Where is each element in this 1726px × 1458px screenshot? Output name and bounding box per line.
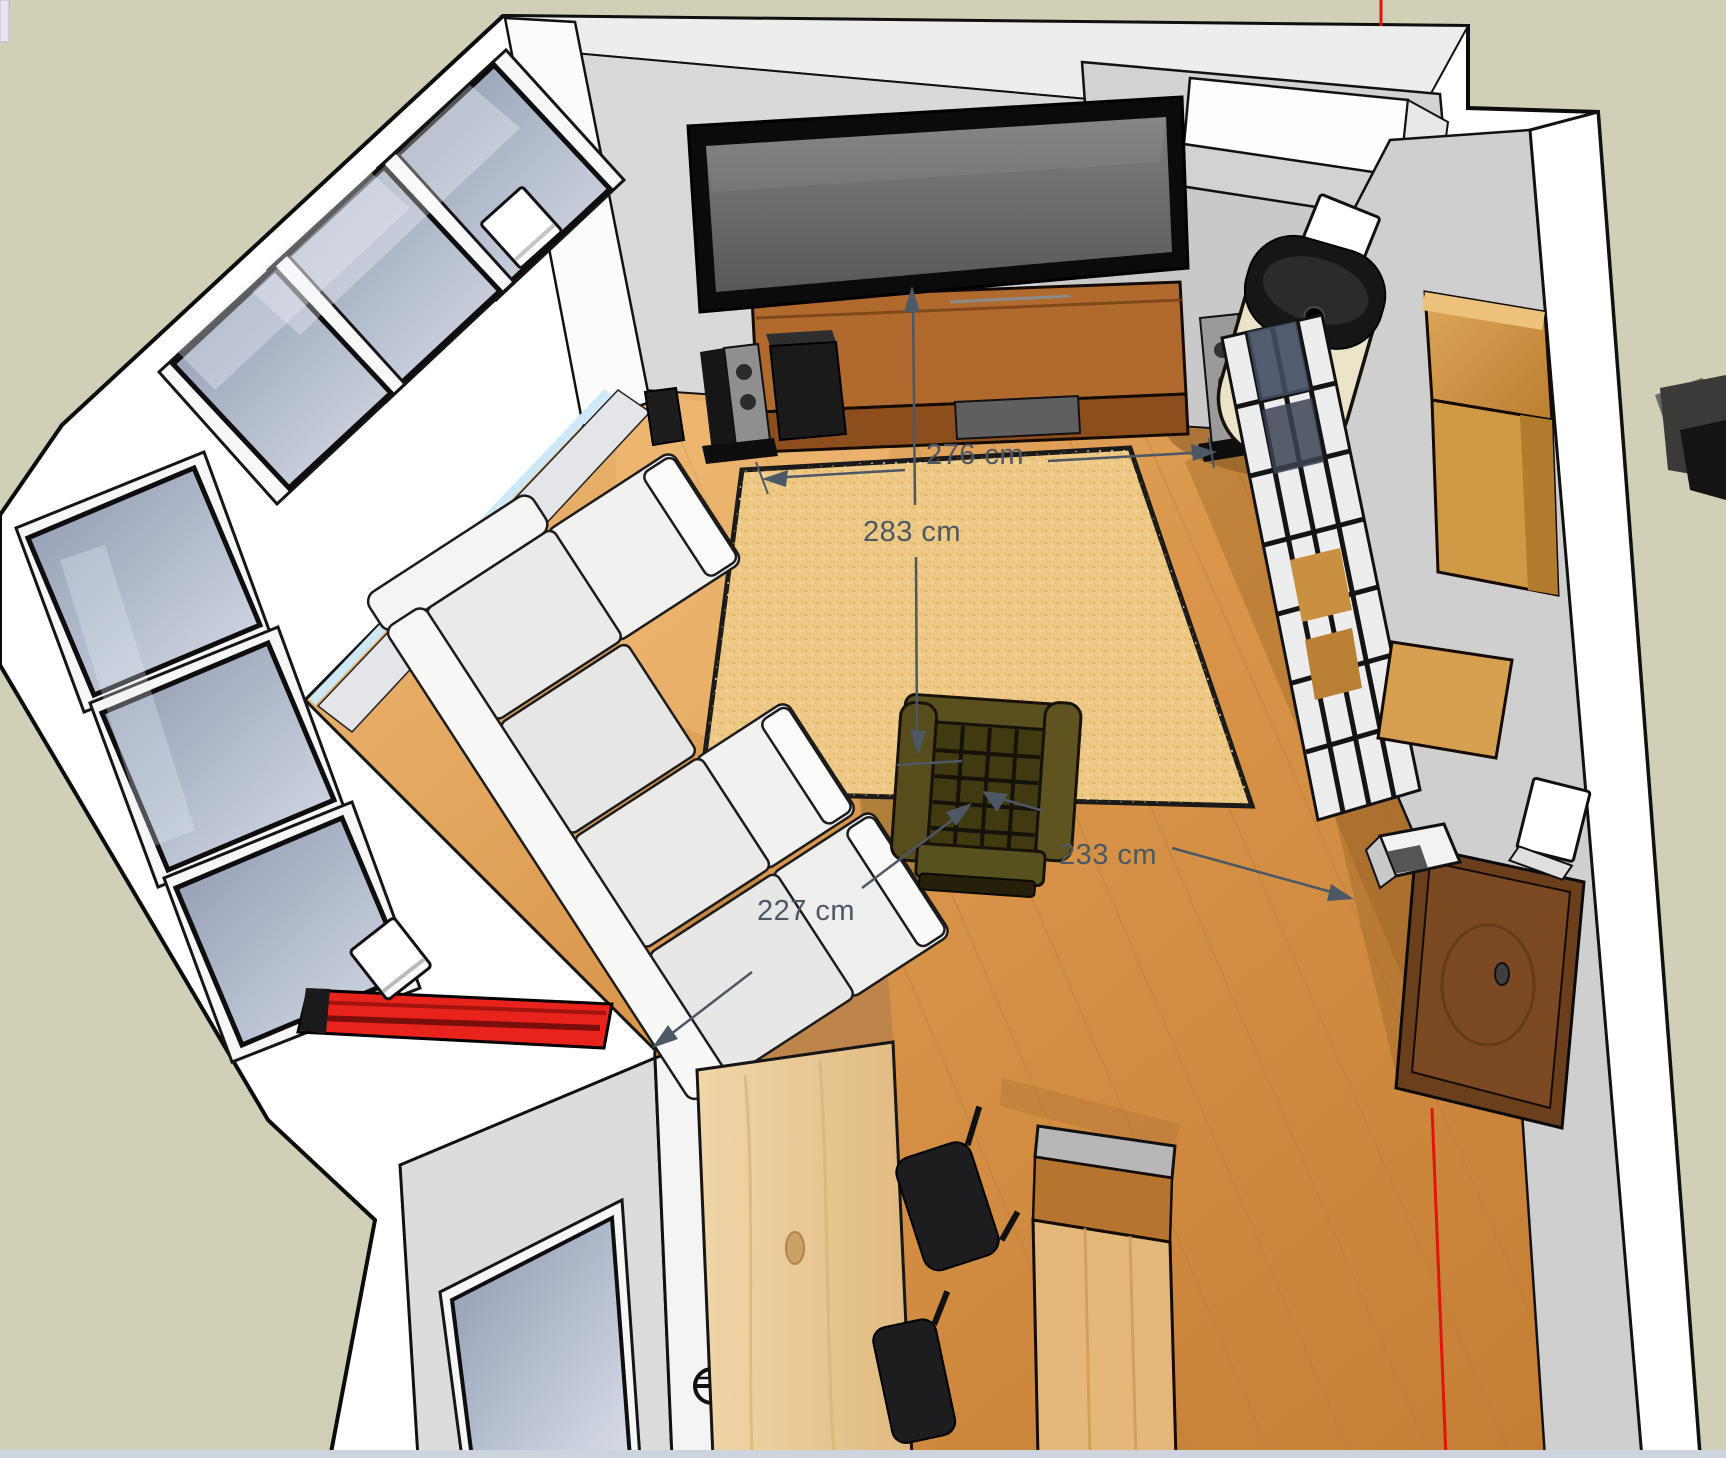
console-gray-drawer: [955, 396, 1080, 439]
wood-box-lower: [1378, 642, 1512, 758]
bookshelf-speaker-left[interactable]: [766, 330, 846, 440]
sideboard-front-panel: [1412, 862, 1570, 1108]
dimension-label-283[interactable]: 283 cm: [863, 516, 961, 548]
top-left-panel-fragment: [0, 0, 9, 42]
speaker-driver: [740, 394, 756, 410]
speaker-stand-small[interactable]: [645, 388, 684, 445]
sketchup-viewport[interactable]: 276 cm 283 cm 233 cm 227 cm: [0, 0, 1726, 1458]
speaker-box: [770, 342, 846, 440]
sideboard-handle: [1495, 963, 1509, 985]
dimension-label-233[interactable]: 233 cm: [1059, 839, 1157, 871]
dark-sideboard[interactable]: [1396, 846, 1584, 1128]
bottom-strip: [0, 1450, 1726, 1458]
grid-wood-cell: [1305, 628, 1362, 700]
dining-table[interactable]: [697, 1042, 912, 1458]
island-front-pine: [1033, 1220, 1176, 1458]
dimension-label-276[interactable]: 276 cm: [926, 439, 1024, 471]
stand-body: [645, 388, 684, 445]
dimension-label-227[interactable]: 227 cm: [757, 895, 855, 927]
kitchen-island[interactable]: [1033, 1126, 1176, 1458]
table-knot: [786, 1232, 804, 1264]
speaker-driver: [736, 364, 752, 380]
